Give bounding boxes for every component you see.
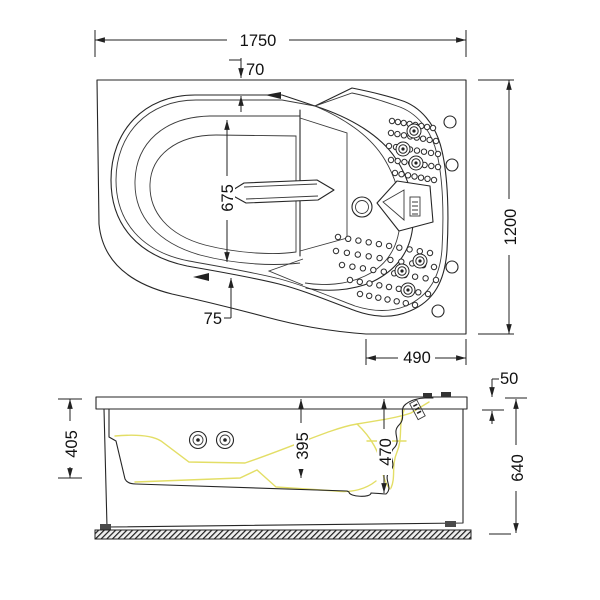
jet-hole <box>392 170 397 175</box>
jet-hole <box>427 250 432 255</box>
jet-hole <box>397 245 402 250</box>
jet-hole <box>399 172 404 177</box>
dim-seat-section-value: 490 <box>403 349 431 367</box>
jet-hole <box>425 291 430 296</box>
dim-overall-height: 640 <box>489 398 527 534</box>
massage-jet <box>401 283 415 297</box>
jet-hole <box>435 164 440 169</box>
drain <box>352 197 372 217</box>
dim-overall-length: 1750 <box>95 30 466 57</box>
dim-deep-basin-depth-value: 470 <box>377 438 395 466</box>
jet-hole <box>389 118 394 123</box>
dim-overall-height-value: 640 <box>509 454 527 482</box>
massage-jet <box>413 254 427 268</box>
side-view-dimensions: 405 395 470 50 640 <box>58 370 527 534</box>
jet-hole <box>403 301 408 306</box>
jet-hole <box>376 295 381 300</box>
jet-hole <box>386 143 391 148</box>
jet-hole <box>388 130 393 135</box>
jet-hole <box>427 137 432 142</box>
jet-hole <box>360 266 365 271</box>
jet-hole <box>418 175 423 180</box>
foot <box>100 524 111 530</box>
jet-hole <box>421 149 426 154</box>
jet-hole <box>333 248 338 253</box>
jet-hole <box>347 277 352 282</box>
jet-hole <box>429 163 434 168</box>
jet-hole <box>424 124 429 129</box>
jet-hole <box>412 274 417 279</box>
apron <box>104 409 463 527</box>
jet-hole <box>425 176 430 181</box>
jet-hole <box>412 174 417 179</box>
jet-hole <box>431 264 436 269</box>
jet-hole <box>417 249 422 254</box>
massage-jet <box>396 142 410 156</box>
jet-hole <box>346 236 351 241</box>
jet-hole <box>357 291 362 296</box>
jet-hole <box>377 283 382 288</box>
jet-hole <box>371 267 376 272</box>
deck-hole <box>446 159 458 171</box>
massage-jet <box>409 156 423 170</box>
jet-hole <box>435 151 440 156</box>
dim-inner-width-value: 675 <box>219 184 237 212</box>
rim-mark <box>265 92 281 99</box>
massage-jet <box>407 124 421 138</box>
jet-hole <box>386 284 391 289</box>
jet-hole <box>356 238 361 243</box>
rim-mark <box>193 273 209 281</box>
dim-rim-height: 50 <box>482 370 518 424</box>
dim-deep-basin-depth: 470 <box>377 399 395 493</box>
jet-hole <box>401 133 406 138</box>
jet-hole <box>407 247 412 252</box>
jet-hole <box>388 257 393 262</box>
jet-hole <box>414 148 419 153</box>
jet-hole <box>367 281 372 286</box>
jet-hole <box>394 299 399 304</box>
jet-hole <box>401 120 406 125</box>
dim-apron-height: 405 <box>58 399 82 478</box>
jet-hole <box>357 279 362 284</box>
jet-hole <box>395 119 400 124</box>
jet-hole <box>395 131 400 136</box>
jet-hole <box>344 250 349 255</box>
jet-hole <box>431 177 436 182</box>
jet-hole <box>366 254 371 259</box>
jet-hole <box>366 240 371 245</box>
jet-hole <box>388 157 393 162</box>
headrest <box>377 181 433 231</box>
massage-jet <box>395 264 409 278</box>
deck-hole <box>432 305 444 317</box>
side-jet <box>217 432 234 449</box>
dim-rim-inset-top-value: 70 <box>246 61 264 79</box>
jet-hole <box>433 138 438 143</box>
bathtub-top-view <box>97 80 466 334</box>
dim-rim-inset-bottom-value: 75 <box>204 310 222 328</box>
jet-hole <box>339 262 344 267</box>
jet-hole <box>350 264 355 269</box>
foot <box>445 521 456 527</box>
dim-rim-height-value: 50 <box>500 370 518 388</box>
jet-hole <box>355 252 360 257</box>
bathtub-side-view <box>95 392 471 539</box>
rim-fitting <box>423 393 432 397</box>
jet-hole <box>420 136 425 141</box>
dim-rim-inset-top: 70 <box>229 58 264 112</box>
dim-apron-height-value: 405 <box>63 430 81 458</box>
jet-hole <box>405 173 410 178</box>
jet-hole <box>423 276 428 281</box>
dim-overall-length-value: 1750 <box>240 32 277 50</box>
dim-basin-depth-value: 395 <box>294 432 312 460</box>
jet-hole <box>416 290 421 295</box>
jet-hole <box>430 125 435 130</box>
deck-hole <box>446 261 458 273</box>
deck-hole <box>444 116 456 128</box>
side-jet <box>190 432 207 449</box>
jet-hole <box>428 150 433 155</box>
jet-hole <box>376 241 381 246</box>
jet-hole <box>412 302 417 307</box>
base-plinth <box>95 530 471 539</box>
jet-hole <box>386 243 391 248</box>
dim-overall-width: 1200 <box>478 80 520 334</box>
jet-hole <box>377 255 382 260</box>
jet-hole <box>381 269 386 274</box>
technical-drawing: 1750 70 675 75 490 1200 <box>0 0 600 600</box>
jet-hole <box>395 158 400 163</box>
dim-overall-width-value: 1200 <box>502 209 520 246</box>
grab-bar <box>228 180 334 203</box>
dim-seat-section: 490 <box>366 339 466 367</box>
jet-hole <box>335 234 340 239</box>
jet-hole <box>367 293 372 298</box>
dim-inner-width: 675 <box>219 120 237 262</box>
jet-hole <box>433 277 438 282</box>
jet-hole <box>402 159 407 164</box>
dim-basin-depth: 395 <box>294 399 312 478</box>
rim-fitting <box>441 392 451 397</box>
jet-hole <box>385 297 390 302</box>
dim-rim-inset-bottom: 75 <box>204 278 231 328</box>
